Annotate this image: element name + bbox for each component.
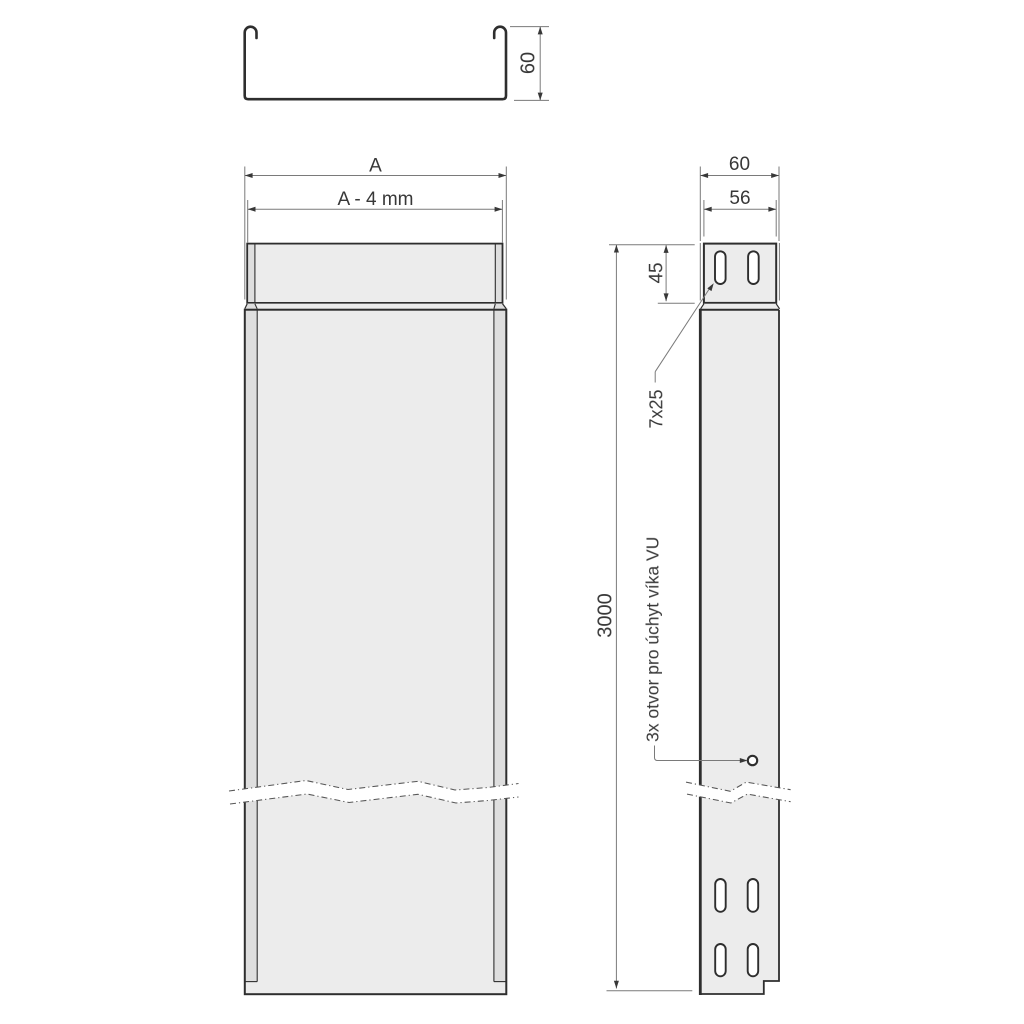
svg-text:A - 4 mm: A - 4 mm bbox=[337, 189, 413, 210]
svg-text:60: 60 bbox=[517, 52, 539, 74]
svg-text:45: 45 bbox=[646, 262, 667, 283]
svg-text:60: 60 bbox=[729, 154, 750, 175]
svg-text:3000: 3000 bbox=[594, 593, 616, 638]
svg-text:3x otvor pro úchyt víka VU: 3x otvor pro úchyt víka VU bbox=[643, 537, 663, 742]
svg-text:56: 56 bbox=[729, 188, 750, 209]
svg-text:7x25: 7x25 bbox=[646, 389, 666, 428]
svg-text:A: A bbox=[369, 156, 382, 177]
